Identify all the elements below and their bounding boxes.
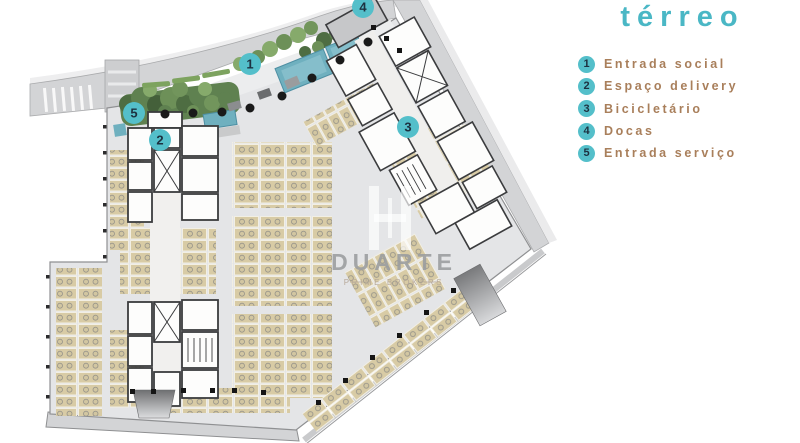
column	[316, 400, 321, 405]
column-dot	[103, 229, 107, 233]
tree-dark	[336, 56, 345, 65]
marker-number: 2	[156, 133, 163, 148]
tree-dark	[364, 38, 373, 47]
column	[232, 388, 237, 393]
marker-number: 3	[404, 120, 411, 135]
room	[182, 370, 218, 398]
column-dot	[46, 275, 50, 279]
tree	[276, 34, 292, 50]
marker-bicicletario: 3	[397, 116, 419, 138]
column	[451, 288, 456, 293]
column-dot	[103, 255, 107, 259]
room	[128, 192, 152, 222]
marker-number: 5	[130, 106, 137, 121]
parking-stalls-center-top	[232, 142, 332, 208]
room	[182, 194, 218, 220]
parking-stalls-center-mid	[232, 216, 332, 306]
legend-number-badge: 1	[578, 56, 595, 73]
column-dot	[103, 203, 107, 207]
parking-stalls-center-bottom	[232, 314, 332, 398]
tree	[290, 27, 306, 43]
marker-number: 4	[359, 0, 367, 15]
legend-number-badge: 4	[578, 123, 595, 140]
tree	[198, 82, 212, 96]
column	[261, 390, 266, 395]
column	[371, 25, 376, 30]
water-feature-small	[113, 123, 127, 137]
legend-number-badge: 5	[578, 145, 595, 162]
legend: 1 Entrada social 2 Espaço delivery 3 Bic…	[578, 53, 738, 164]
legend-panel: térreo 1 Entrada social 2 Espaço deliver…	[565, 0, 800, 443]
tree-dark	[161, 110, 170, 119]
page-title: térreo	[565, 2, 800, 32]
column	[151, 389, 156, 394]
room	[182, 158, 218, 192]
column	[370, 355, 375, 360]
room	[128, 162, 152, 190]
tree-dark	[218, 108, 227, 117]
column	[210, 388, 215, 393]
tree	[304, 21, 318, 35]
column	[130, 389, 135, 394]
column-dot	[46, 305, 50, 309]
column	[343, 378, 348, 383]
legend-item-bicicletario: 3 Bicicletário	[578, 98, 738, 120]
parking-stalls-west-column	[56, 268, 102, 416]
legend-item-label: Entrada social	[604, 57, 726, 71]
garage-ramp-south	[133, 390, 175, 418]
column	[384, 36, 389, 41]
tree	[204, 95, 220, 111]
tree-dark	[189, 109, 198, 118]
marker-espaco-delivery: 2	[149, 129, 171, 151]
legend-item-label: Entrada serviço	[604, 146, 737, 160]
tree-dark	[278, 92, 287, 101]
column	[424, 310, 429, 315]
column-dot	[46, 365, 50, 369]
legend-item-label: Espaço delivery	[604, 79, 738, 93]
column-dot	[46, 395, 50, 399]
floorplan-drawing: DUARTE PRIME BROKERS 1 2 3 4	[0, 0, 565, 443]
floorplan-page: DUARTE PRIME BROKERS 1 2 3 4	[0, 0, 800, 443]
room	[128, 336, 152, 366]
column-dot	[46, 335, 50, 339]
column-dot	[103, 151, 107, 155]
column	[181, 388, 186, 393]
legend-item-docas: 4 Docas	[578, 120, 738, 142]
room	[128, 302, 152, 334]
legend-item-entrada-servico: 5 Entrada serviço	[578, 142, 738, 164]
legend-item-entrada-social: 1 Entrada social	[578, 53, 738, 75]
legend-item-label: Bicicletário	[604, 102, 703, 116]
column	[397, 333, 402, 338]
marker-number: 1	[246, 57, 253, 72]
legend-item-espaco-delivery: 2 Espaço delivery	[578, 75, 738, 97]
tree-dark	[246, 104, 255, 113]
room	[128, 128, 152, 160]
watermark-name: DUARTE	[331, 249, 457, 275]
column-dot	[103, 125, 107, 129]
tree	[262, 41, 278, 57]
marker-entrada-servico: 5	[123, 102, 145, 124]
legend-number-badge: 2	[578, 78, 595, 95]
column	[397, 48, 402, 53]
room	[182, 300, 218, 330]
tree-dark	[308, 74, 317, 83]
legend-number-badge: 3	[578, 100, 595, 117]
legend-item-label: Docas	[604, 124, 655, 138]
marker-entrada-social: 1	[239, 53, 261, 75]
room	[182, 126, 218, 156]
column-dot	[103, 177, 107, 181]
